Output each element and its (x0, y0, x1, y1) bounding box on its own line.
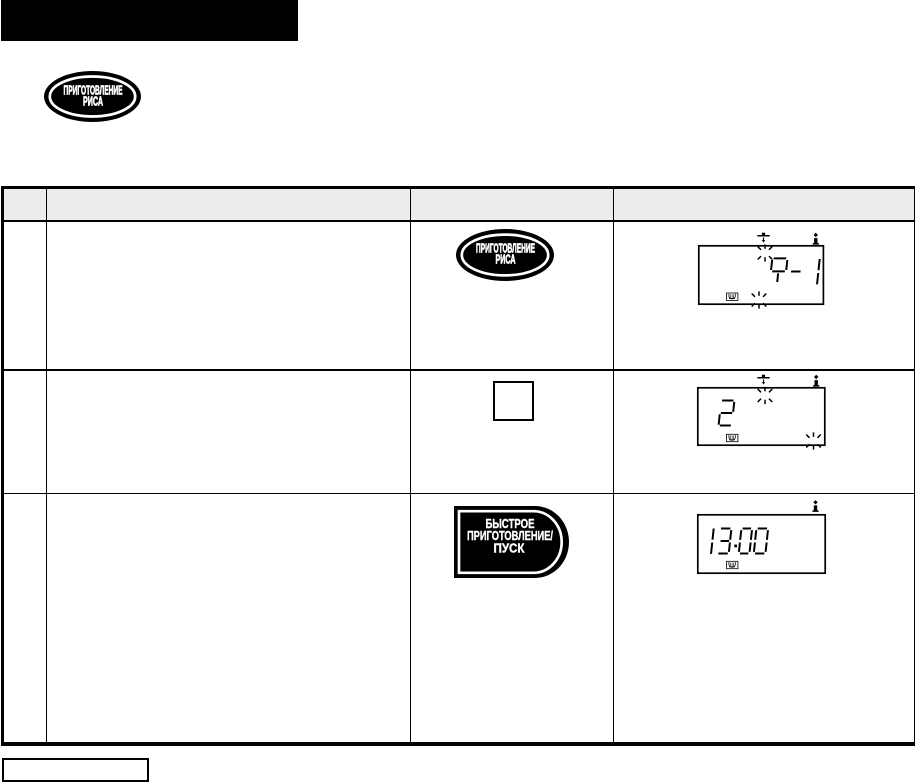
svg-text:ПУСК: ПУСК (494, 541, 525, 556)
svg-text:РИСА: РИСА (496, 252, 516, 267)
svg-text:РИСА: РИСА (83, 94, 103, 109)
